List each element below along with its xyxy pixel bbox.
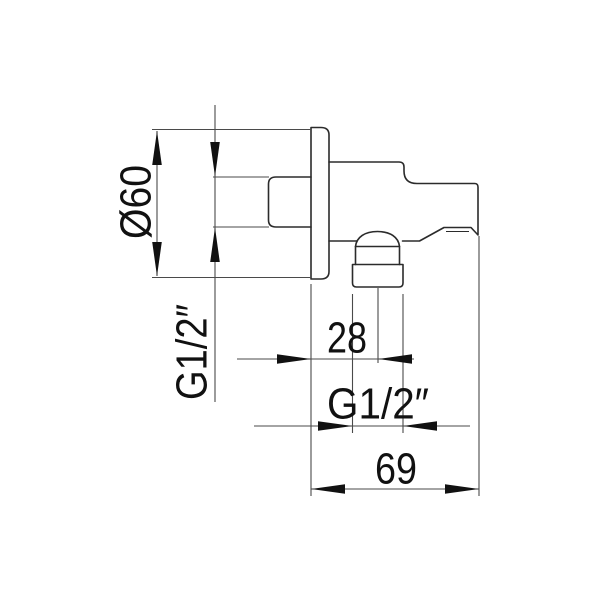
body-depth-label: 69: [375, 445, 417, 494]
outlet-thread-label: G1/2″: [327, 380, 429, 429]
inlet-extension-lines: [213, 177, 269, 227]
wall-plate-outline: [311, 128, 329, 280]
holder-arm-outline: [329, 162, 478, 241]
flange-diameter-label: Ø60: [112, 165, 161, 239]
dimension-labels: Ø60 G1/2″ 28 G1/2″ 69: [112, 165, 430, 494]
diameter-arrow-down: [152, 242, 162, 276]
inlet-arrow-up: [210, 228, 220, 263]
technical-drawing: Ø60 G1/2″ 28 G1/2″ 69: [0, 0, 600, 600]
offset-arrow-right: [378, 354, 412, 364]
part-outline: [269, 128, 479, 288]
dimension-lines: [152, 105, 479, 496]
inlet-thread-label: G1/2″: [168, 304, 217, 400]
offset-arrow-left: [277, 354, 311, 364]
diameter-arrow-up: [152, 131, 162, 165]
depth-arrow-right: [445, 484, 479, 494]
outlet-cap-nut-outline: [353, 265, 404, 288]
inlet-arrow-down: [210, 142, 220, 177]
inlet-nipple-outline: [269, 177, 312, 227]
diameter-extension-lines: [152, 130, 311, 278]
depth-arrow-left: [311, 484, 345, 494]
outlet-offset-label: 28: [327, 314, 367, 363]
drawing-canvas: Ø60 G1/2″ 28 G1/2″ 69: [0, 0, 600, 600]
outlet-cap-dome-outline: [356, 232, 400, 247]
outlet-cap-body-outline: [356, 247, 400, 265]
